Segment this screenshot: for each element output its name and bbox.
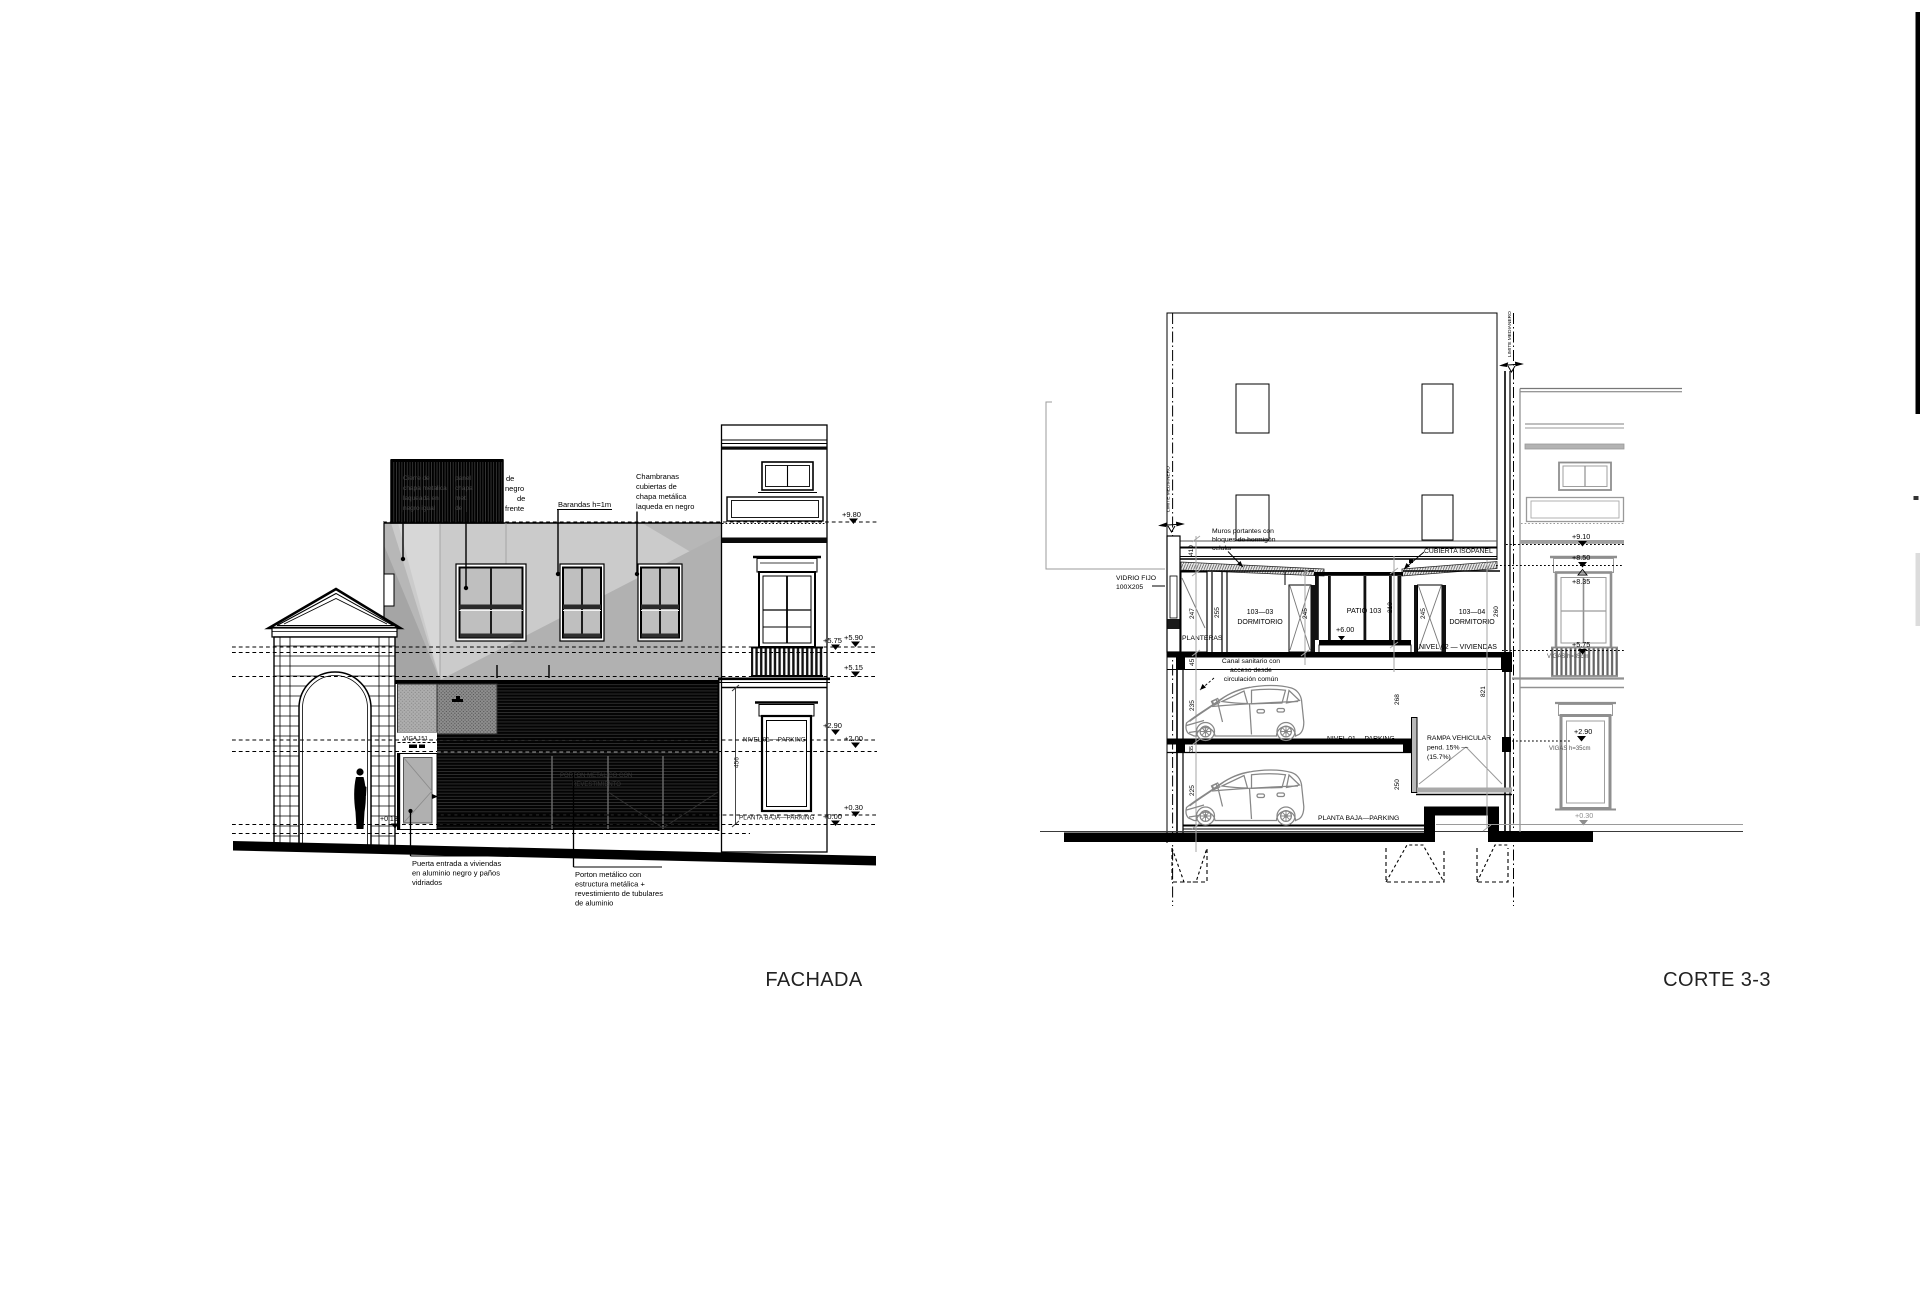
svg-text:PORTON METALICO CON: PORTON METALICO CON — [560, 773, 632, 779]
svg-text:821: 821 — [1480, 686, 1487, 697]
svg-text:+2.90: +2.90 — [823, 721, 842, 730]
svg-text:+8.35: +8.35 — [1572, 577, 1590, 586]
svg-text:+8.50: +8.50 — [1572, 553, 1590, 562]
svg-text:estructura metálica +: estructura metálica + — [575, 880, 645, 889]
svg-text:vidriados: vidriados — [412, 878, 442, 887]
svg-text:circulación común: circulación común — [1224, 676, 1279, 683]
svg-text:+0.30: +0.30 — [1575, 811, 1593, 820]
svg-text:VIGAS h=35cm: VIGAS h=35cm — [1547, 654, 1589, 660]
svg-text:103—04: 103—04 — [1459, 609, 1486, 616]
svg-text:DORMITORIO: DORMITORIO — [1449, 619, 1495, 626]
svg-text:245: 245 — [1302, 608, 1309, 619]
svg-text:chapa metálica: chapa metálica — [636, 492, 687, 501]
svg-text:210: 210 — [1387, 602, 1394, 613]
svg-text:Porton metálico con: Porton metálico con — [575, 870, 641, 879]
svg-text:247: 247 — [1189, 608, 1196, 619]
svg-text:+9.80: +9.80 — [842, 510, 861, 519]
svg-text:LIMITE MEDIANERO: LIMITE MEDIANERO — [1507, 311, 1513, 357]
svg-text:de: de — [455, 505, 463, 512]
svg-text:negro igual: negro igual — [403, 505, 436, 512]
svg-text:+2.90: +2.90 — [1574, 727, 1592, 736]
svg-text:negro: negro — [505, 484, 524, 493]
svg-text:456: 456 — [734, 757, 741, 768]
svg-text:250: 250 — [1394, 779, 1401, 790]
svg-text:panel: panel — [455, 475, 471, 482]
svg-text:+5.75: +5.75 — [1572, 640, 1590, 649]
svg-text:PLANTERAS: PLANTERAS — [1182, 635, 1223, 642]
svg-text:268: 268 — [1394, 694, 1401, 705]
svg-text:laqueada en: laqueada en — [403, 495, 439, 502]
svg-text:Muros portantes con: Muros portantes con — [1212, 528, 1274, 535]
svg-text:103—03: 103—03 — [1247, 609, 1274, 616]
svg-text:410: 410 — [1188, 545, 1195, 556]
svg-text:VIGA 151: VIGA 151 — [403, 736, 428, 742]
svg-text:de aluminio: de aluminio — [575, 899, 613, 908]
svg-text:VIDRIO FIJO: VIDRIO FIJO — [1116, 575, 1156, 582]
svg-text:celular: celular — [1212, 545, 1233, 552]
svg-text:met.: met. — [455, 495, 468, 502]
svg-text:+2.00: +2.00 — [844, 734, 863, 743]
svg-text:PATIO 103: PATIO 103 — [1347, 606, 1382, 615]
svg-text:pend. 15% —: pend. 15% — — [1427, 745, 1468, 752]
svg-text:(15.7%): (15.7%) — [1427, 754, 1451, 761]
svg-text:LIMITE MEDIANERO: LIMITE MEDIANERO — [1166, 466, 1172, 512]
svg-text:+0.13: +0.13 — [380, 816, 398, 823]
svg-text:DORMITORIO: DORMITORIO — [1237, 619, 1283, 626]
svg-text:laqueda en negro: laqueda en negro — [636, 502, 694, 511]
svg-text:NIVEL 01— PARKING: NIVEL 01— PARKING — [1327, 736, 1395, 743]
svg-text:+5.15: +5.15 — [844, 663, 863, 672]
svg-text:cubiertas de: cubiertas de — [636, 482, 677, 491]
svg-text:235: 235 — [1189, 700, 1196, 711]
svg-text:acceso desde: acceso desde — [1230, 667, 1272, 674]
svg-text:Chambranas: Chambranas — [636, 472, 679, 481]
svg-text:chapa metalica: chapa metalica — [403, 485, 447, 492]
svg-text:frente: frente — [505, 504, 524, 513]
svg-text:Puerta entrada a viviendas: Puerta entrada a viviendas — [412, 859, 501, 868]
svg-text:Canal sanitario con: Canal sanitario con — [1222, 658, 1280, 665]
svg-text:de: de — [517, 494, 525, 503]
svg-text:NIVEL 02 — VIVIENDAS: NIVEL 02 — VIVIENDAS — [1419, 644, 1497, 651]
svg-text:VIGAS h=35cm: VIGAS h=35cm — [1549, 746, 1591, 752]
svg-text:+5.90: +5.90 — [844, 633, 863, 642]
svg-text:bloques de hormigón: bloques de hormigón — [1212, 537, 1276, 544]
svg-text:revestimiento de tubulares: revestimiento de tubulares — [575, 889, 663, 898]
svg-text:REVESTIMIENTO: REVESTIMIENTO — [572, 782, 621, 788]
svg-text:255: 255 — [1214, 607, 1221, 618]
svg-text:en aluminio negro y paños: en aluminio negro y paños — [412, 869, 500, 878]
svg-text:FACHADA: FACHADA — [765, 969, 863, 991]
svg-text:de: de — [506, 474, 514, 483]
svg-text:Cierre de: Cierre de — [403, 475, 430, 482]
svg-text:+0.00: +0.00 — [823, 812, 842, 821]
svg-text:245: 245 — [1420, 608, 1427, 619]
svg-text:+0.30: +0.30 — [844, 803, 863, 812]
svg-text:Barandas h=1m: Barandas h=1m — [558, 500, 611, 509]
svg-text:+5.75: +5.75 — [823, 636, 842, 645]
svg-text:260: 260 — [1493, 606, 1500, 617]
svg-text:+9.10: +9.10 — [1572, 532, 1590, 541]
svg-text:PLANTA BAJA—PARKING: PLANTA BAJA—PARKING — [1318, 815, 1399, 822]
svg-text:+6.00: +6.00 — [1336, 625, 1354, 634]
svg-text:chapa: chapa — [455, 485, 473, 492]
svg-text:225: 225 — [1189, 785, 1196, 796]
svg-text:RAMPA VEHICULAR: RAMPA VEHICULAR — [1427, 735, 1491, 742]
svg-text:CORTE 3-3: CORTE 3-3 — [1663, 969, 1771, 991]
svg-text:CUBIERTA ISOPANEL: CUBIERTA ISOPANEL — [1424, 548, 1493, 555]
svg-text:45: 45 — [1189, 658, 1196, 666]
svg-text:100X205: 100X205 — [1116, 584, 1143, 591]
svg-text:35: 35 — [1189, 746, 1195, 752]
